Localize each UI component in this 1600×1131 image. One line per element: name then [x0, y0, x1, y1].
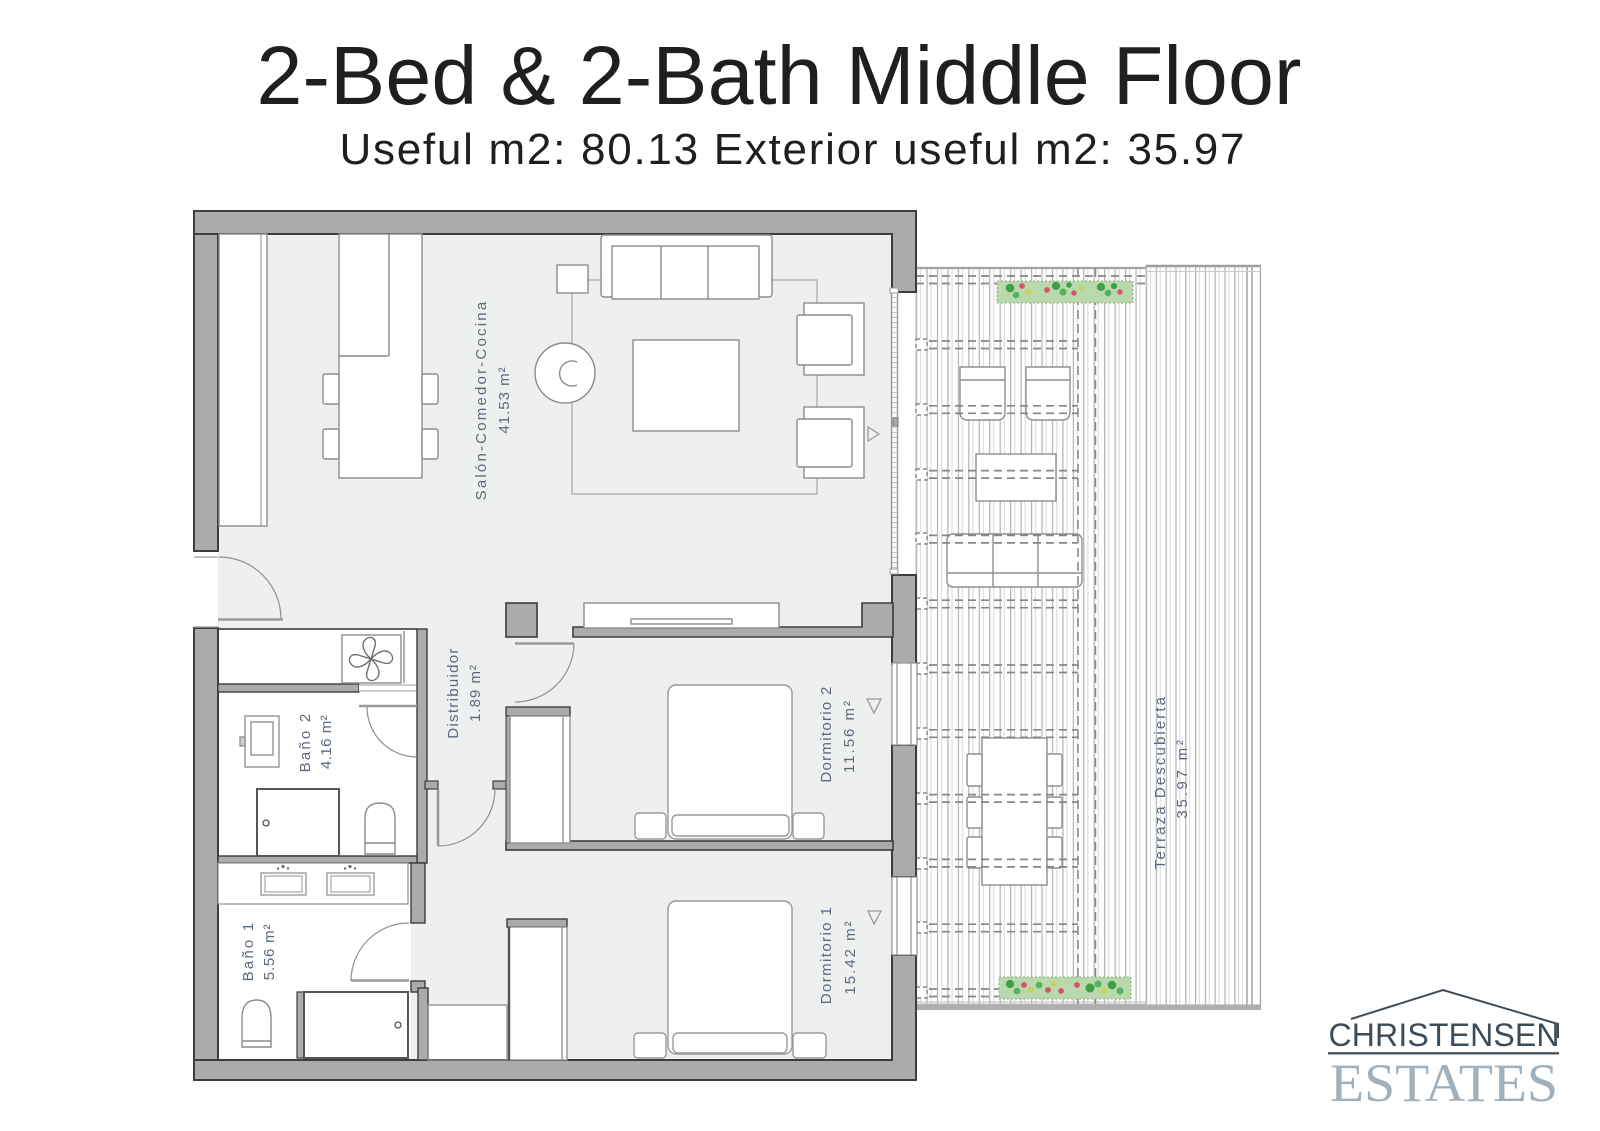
svg-text:Dormitorio 2: Dormitorio 2 [818, 685, 835, 782]
svg-text:Baño 2: Baño 2 [297, 712, 314, 773]
svg-text:CHRISTENSEN: CHRISTENSEN [1329, 1017, 1560, 1053]
svg-text:41.53 m²: 41.53 m² [496, 366, 513, 433]
svg-text:Terraza Descubierta: Terraza Descubierta [1152, 695, 1169, 869]
svg-text:11.56 m²: 11.56 m² [841, 699, 858, 773]
svg-text:Dormitorio 1: Dormitorio 1 [818, 906, 835, 1005]
svg-text:Baño 1: Baño 1 [240, 921, 257, 982]
svg-text:Useful m2: 80.13 Exterior usef: Useful m2: 80.13 Exterior useful m2: 35.… [340, 125, 1245, 174]
svg-text:35.97 m²: 35.97 m² [1174, 737, 1191, 818]
svg-text:2-Bed & 2-Bath Middle Floor: 2-Bed & 2-Bath Middle Floor [257, 30, 1302, 122]
svg-text:4.16 m²: 4.16 m² [318, 715, 335, 769]
svg-text:Salón-Comedor-Cocina: Salón-Comedor-Cocina [473, 300, 490, 501]
svg-text:1.89 m²: 1.89 m² [467, 664, 484, 722]
svg-text:5.56 m²: 5.56 m² [261, 924, 278, 980]
svg-text:15.42 m²: 15.42 m² [842, 919, 859, 994]
svg-text:ESTATES: ESTATES [1330, 1053, 1558, 1113]
svg-text:Distribuidor: Distribuidor [445, 647, 462, 738]
